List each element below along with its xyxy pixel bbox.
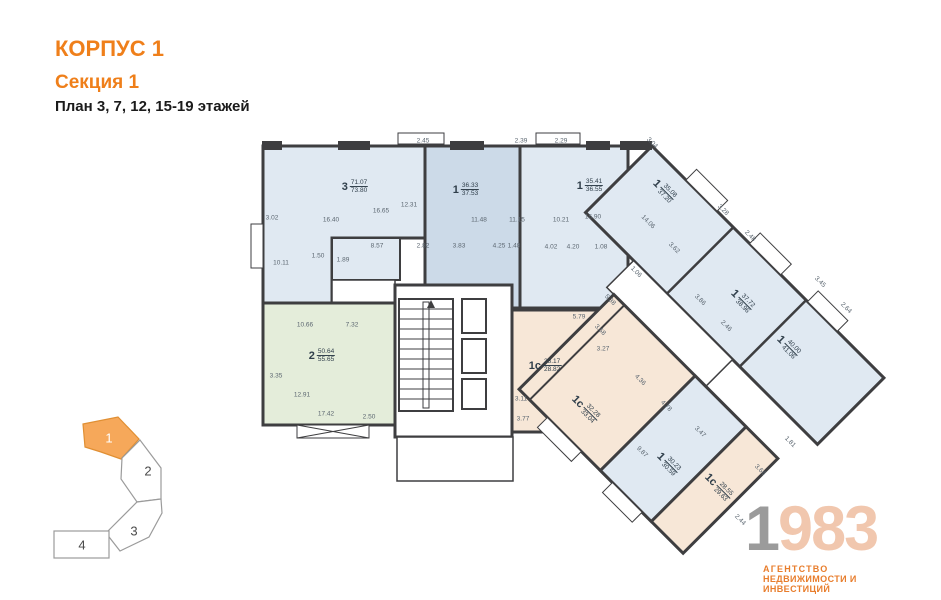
logo-year: 1983 <box>745 498 915 561</box>
floor-plan-page: КОРПУС 1 Секция 1 План 3, 7, 12, 15-19 э… <box>0 0 941 600</box>
apartment-2room-shape <box>263 303 395 425</box>
staircase <box>399 299 453 411</box>
key-section-4-number: 4 <box>78 538 85 553</box>
key-section-1-number: 1 <box>105 431 112 446</box>
green-balcony <box>297 425 369 438</box>
balcony <box>536 133 580 144</box>
logo-year-rest: 983 <box>778 494 877 564</box>
key-section-3-number: 3 <box>130 524 137 539</box>
agency-logo: 1983 АГЕНТСТВО НЕДВИЖИМОСТИ И ИНВЕСТИЦИЙ <box>745 498 915 594</box>
utility-rooms-shape <box>332 238 400 280</box>
elevators <box>462 299 486 409</box>
balcony <box>251 224 263 268</box>
balcony <box>398 133 444 144</box>
logo-line1: АГЕНТСТВО <box>763 564 915 574</box>
key-section-2-number: 2 <box>144 464 151 479</box>
logo-line2: НЕДВИЖИМОСТИ И ИНВЕСТИЦИЙ <box>763 574 915 594</box>
terrace <box>397 437 513 481</box>
logo-year-first-digit: 1 <box>745 494 778 564</box>
